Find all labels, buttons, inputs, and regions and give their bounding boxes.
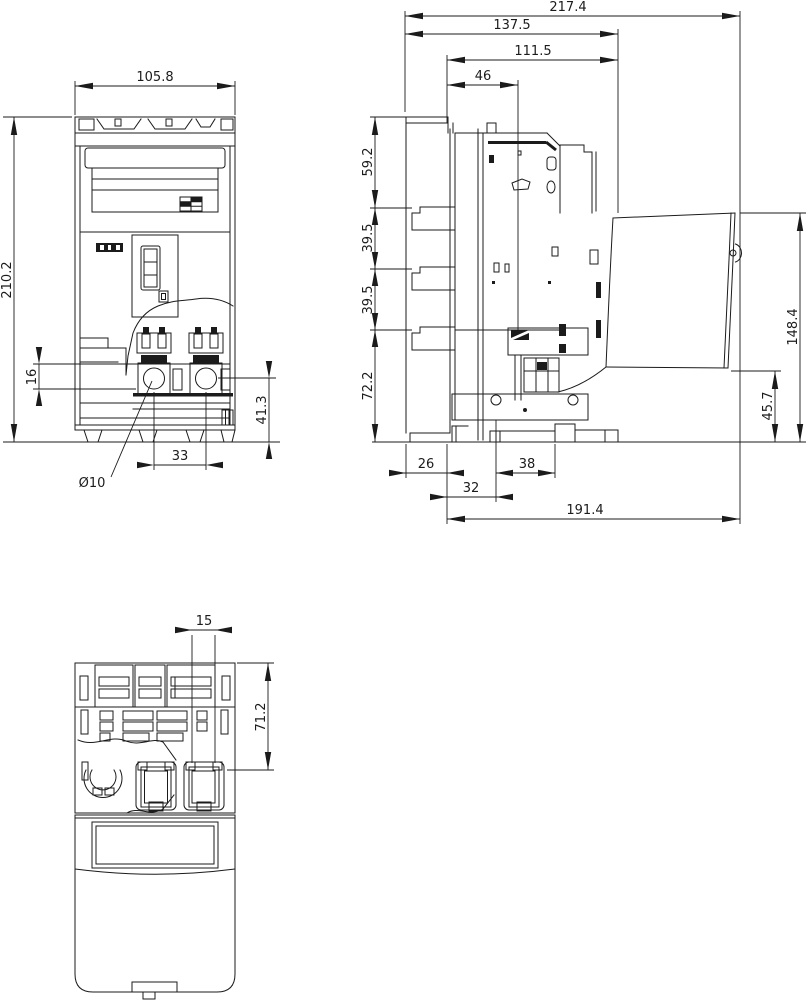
dim-label: 41.3 bbox=[255, 396, 270, 425]
dim-label: Ø10 bbox=[79, 476, 106, 491]
dim-front-width: 105.8 bbox=[75, 70, 235, 115]
dim-label: 16 bbox=[25, 369, 40, 386]
dim-label: 137.5 bbox=[493, 18, 530, 33]
dim-side-depth-b: 111.5 bbox=[447, 44, 618, 123]
dim-front-hole-pitch: 33 bbox=[137, 392, 223, 470]
drawing-canvas: 105.8 210.2 16 41.3 bbox=[0, 0, 808, 1000]
dimension-drawing-page: 105.8 210.2 16 41.3 bbox=[0, 0, 808, 1000]
dim-label: 191.4 bbox=[566, 503, 603, 518]
side-rotary-handle bbox=[558, 213, 742, 392]
dim-label: 32 bbox=[463, 481, 480, 496]
dim-side-depth-a: 137.5 bbox=[405, 18, 618, 213]
front-view: 105.8 210.2 16 41.3 bbox=[0, 70, 280, 491]
dim-side-off-c: 32 bbox=[430, 481, 513, 500]
dim-label: 39.5 bbox=[361, 286, 376, 315]
dim-label: 26 bbox=[418, 457, 435, 472]
dim-label: 111.5 bbox=[514, 44, 551, 59]
bottom-opening-left bbox=[136, 762, 176, 811]
dim-label: 72.2 bbox=[361, 372, 376, 401]
bottom-outline bbox=[75, 663, 235, 813]
dim-label: 46 bbox=[475, 69, 492, 84]
dim-side-seg-mid1: 39.5 bbox=[361, 208, 412, 269]
dim-side-seg-top: 59.2 bbox=[361, 117, 412, 208]
dim-label: 217.4 bbox=[549, 0, 586, 15]
terminal-hole bbox=[196, 368, 217, 389]
dim-label: 210.2 bbox=[0, 261, 15, 298]
side-view: 217.4 137.5 111.5 46 bbox=[361, 0, 806, 524]
terminal-hole bbox=[144, 368, 165, 389]
dim-side-off-b: 38 bbox=[496, 420, 555, 502]
dim-side-handle-gap: 45.7 bbox=[731, 371, 781, 442]
dim-label: 105.8 bbox=[136, 70, 173, 85]
dim-side-base-depth: 191.4 bbox=[447, 503, 740, 522]
dim-label: 39.5 bbox=[361, 224, 376, 253]
dim-label: 148.4 bbox=[786, 308, 801, 345]
arrowhead bbox=[217, 83, 235, 89]
front-outline bbox=[75, 117, 235, 442]
dim-side-seg-bottom: 72.2 bbox=[361, 330, 378, 442]
dim-side-off-a: 26 bbox=[389, 444, 464, 524]
arrowhead bbox=[75, 83, 93, 89]
dim-label: 45.7 bbox=[761, 392, 776, 421]
dim-label: 33 bbox=[172, 449, 189, 464]
dim-bottom-section-depth: 71.2 bbox=[227, 663, 274, 770]
dim-front-height: 210.2 bbox=[0, 117, 72, 442]
side-outline bbox=[406, 117, 618, 442]
front-terminal-left bbox=[137, 327, 171, 394]
bottom-opening-right bbox=[184, 762, 224, 811]
dim-label: 38 bbox=[519, 457, 536, 472]
break-line bbox=[78, 739, 176, 760]
dim-label: 15 bbox=[196, 614, 213, 629]
dim-label: 71.2 bbox=[254, 703, 269, 732]
dim-side-seg-mid2: 39.5 bbox=[361, 269, 412, 330]
bottom-view: 15 71.2 bbox=[75, 614, 274, 999]
front-terminal-right bbox=[189, 327, 223, 394]
dim-label: 59.2 bbox=[361, 148, 376, 177]
bottom-handle-housing bbox=[75, 815, 235, 999]
